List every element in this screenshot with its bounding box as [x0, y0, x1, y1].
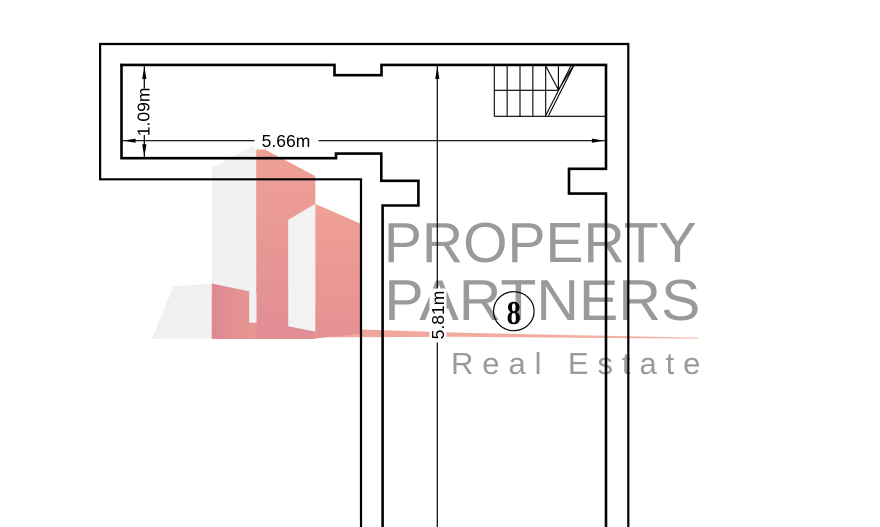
- svg-text:8: 8: [507, 294, 521, 332]
- svg-text:PROPERTY: PROPERTY: [384, 211, 697, 274]
- svg-text:5.66m: 5.66m: [262, 131, 311, 151]
- svg-text:1.09m: 1.09m: [134, 88, 154, 137]
- svg-text:5.81m: 5.81m: [428, 291, 448, 340]
